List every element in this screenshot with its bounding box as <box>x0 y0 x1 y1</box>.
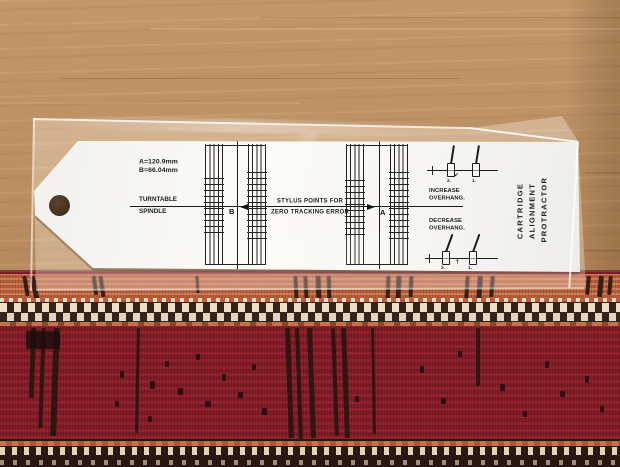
cartridge-1-label: 1. <box>472 178 476 184</box>
move-arrow-icon: ↙ <box>454 172 459 178</box>
dimension-text: A=120.9mm B=66.04mm <box>139 157 178 174</box>
rug-stripe <box>600 406 604 412</box>
decrease-diagram-line <box>425 258 498 259</box>
rug-stripe <box>285 328 294 438</box>
rug-stripe <box>222 374 226 381</box>
grid-line <box>205 145 266 146</box>
rug-dotted-band <box>0 298 620 326</box>
plastic-reflection <box>250 232 431 268</box>
rug-stripe <box>341 328 350 438</box>
wood-grain-line <box>0 102 300 104</box>
rug-stripe <box>476 328 480 386</box>
rug-stripe <box>441 398 446 404</box>
rug-stripe <box>585 376 589 383</box>
cartridge-icon <box>472 163 480 177</box>
cantilever-icon <box>445 234 454 253</box>
decrease-overhang-label: DECREASE OVERHANG. <box>429 217 465 232</box>
rug-stripe <box>355 396 359 402</box>
rug-stripe <box>307 328 316 438</box>
rug-stripe <box>458 351 462 357</box>
point-a-label: A <box>380 208 385 217</box>
point-b-label: B <box>229 207 234 216</box>
grid-line <box>346 145 408 146</box>
rug-stripe <box>178 388 183 395</box>
dimension-b: B=66.04mm <box>139 166 178 175</box>
rug-stripe <box>115 401 119 407</box>
wood-grain-line <box>60 78 460 79</box>
rug-stripe <box>252 364 256 370</box>
rug-stripe <box>148 416 152 422</box>
rug-dot-row <box>0 447 620 455</box>
wood-grain-line <box>260 17 620 18</box>
rug-stripe <box>150 381 155 389</box>
rug-stripe <box>607 276 613 295</box>
rug-stripe <box>500 384 505 391</box>
turntable-label: TURNTABLE <box>139 196 177 203</box>
rug-dot-row <box>0 460 620 465</box>
rug-red-field <box>0 326 620 439</box>
wood-grain-line <box>150 28 620 30</box>
rug-stripe <box>262 408 267 415</box>
rug-stripe <box>238 392 243 398</box>
wood-seam <box>583 249 620 252</box>
move-arrow-icon: ↑ <box>455 259 460 265</box>
rug-stripe <box>331 328 339 436</box>
cantilever-icon <box>450 145 455 164</box>
dimension-a: A=120.9mm <box>139 157 178 166</box>
rug-stripe <box>26 331 60 349</box>
spindle-label: SPINDLE <box>139 208 166 215</box>
wood-seam <box>585 172 620 174</box>
side-title: CARTRIDGE ALIGNMENT PROTRACTOR <box>515 180 551 243</box>
crosshair-icon <box>428 166 437 175</box>
rug <box>0 270 620 467</box>
title-line: PROTRACTOR <box>539 180 551 243</box>
cartridge-icon <box>469 251 477 265</box>
spindle-hole <box>49 195 70 216</box>
cantilever-icon <box>475 145 480 164</box>
rug-dot-row <box>0 303 620 312</box>
rug-stripe <box>295 328 303 440</box>
rug-stripe <box>597 276 604 297</box>
left-arrowhead-icon <box>240 204 248 210</box>
grid-center-line <box>237 140 238 269</box>
rug-stripe <box>545 361 549 368</box>
stylus-note-line2: ZERO TRACKING ERROR <box>250 208 370 215</box>
rug-stripe <box>205 401 211 407</box>
rug-stripe <box>523 411 527 417</box>
rug-dot-row <box>0 313 620 321</box>
cartridge-2-label: 2. <box>441 265 445 271</box>
rug-bottom-border <box>0 439 620 467</box>
cartridge-1-label: 1. <box>468 265 472 271</box>
increase-overhang-label: INCREASE OVERHANG. <box>429 187 465 202</box>
rug-stripe <box>196 354 200 360</box>
cartridge-2-label: 2. <box>447 178 451 184</box>
rug-stripe <box>420 366 424 373</box>
stylus-note-line1: STYLUS POINTS FOR <box>250 197 370 204</box>
rug-stripe <box>135 328 140 433</box>
title-line: ALIGNMENT <box>527 180 539 243</box>
increase-diagram-line <box>427 170 498 171</box>
rug-stripe <box>165 361 169 367</box>
rug-stripe <box>585 276 591 295</box>
rug-stripe <box>560 391 565 397</box>
rug-stripe <box>371 328 376 434</box>
rug-stripe <box>120 371 124 378</box>
rug-dot-row <box>0 441 620 446</box>
rug-dot-row <box>0 298 620 302</box>
cantilever-icon <box>472 234 481 253</box>
rug-stripe <box>22 276 29 296</box>
title-line: CARTRIDGE <box>515 180 527 243</box>
cartridge-icon <box>442 251 450 265</box>
